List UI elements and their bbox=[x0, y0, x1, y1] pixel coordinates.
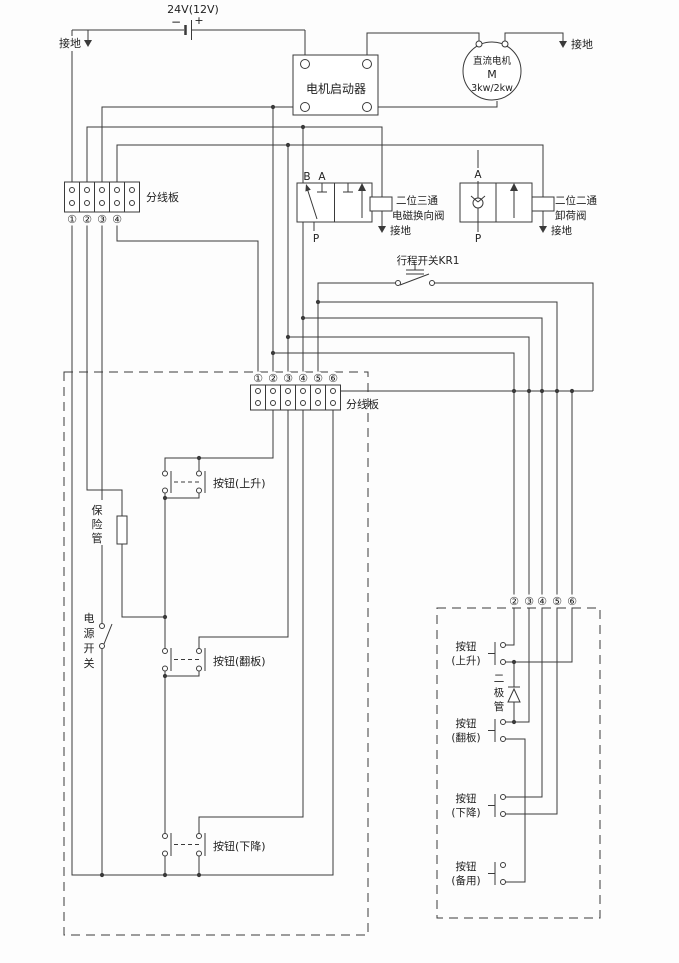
power-switch-symbol bbox=[100, 624, 105, 649]
button-down-label: 按钮(下降) bbox=[213, 839, 266, 853]
pendant-button-spare-label1: 按钮 bbox=[456, 860, 477, 873]
valve3way-name-line1: 二位三通 bbox=[396, 194, 438, 207]
wiring-diagram: 24V(12V) − + 接地 电机启动器 直流电机 M 3kw/2kw 接地 … bbox=[0, 0, 679, 963]
terminal-number: ⑤ bbox=[313, 372, 323, 385]
valve-port-p: P bbox=[313, 233, 319, 245]
valve3way-name-line2: 电磁换向阀 bbox=[392, 209, 445, 222]
pendant-button-up-symbol bbox=[488, 642, 506, 665]
terminal-number: ② bbox=[268, 372, 278, 385]
terminal-number: ⑥ bbox=[328, 372, 338, 385]
terminal-number: ③ bbox=[283, 372, 293, 385]
unload-valve-2way bbox=[460, 150, 554, 232]
terminal-board-left bbox=[65, 182, 140, 212]
power-switch-label-char: 电 bbox=[84, 612, 95, 625]
limit-switch-label: 行程开关KR1 bbox=[397, 254, 460, 267]
valve-port-b: B bbox=[303, 171, 310, 183]
pendant-button-flip-label2: (翻板) bbox=[451, 731, 480, 744]
fuse-label-char: 险 bbox=[92, 517, 103, 531]
button-down-symbol bbox=[163, 833, 206, 856]
terminal-number: ① bbox=[67, 213, 77, 226]
terminal-number: ③ bbox=[524, 595, 534, 608]
terminal-number: ② bbox=[509, 595, 519, 608]
battery-plus-label: + bbox=[194, 14, 203, 27]
left-board-label: 分线板 bbox=[146, 190, 179, 204]
power-switch-label-char: 源 bbox=[84, 626, 95, 640]
ground-arrow-icon bbox=[378, 226, 386, 233]
diode-label-char: 极 bbox=[494, 686, 505, 699]
terminal-number: ④ bbox=[298, 372, 308, 385]
motor-symbol-label: M bbox=[487, 68, 497, 81]
schematic-page: 24V(12V) − + 接地 电机启动器 直流电机 M 3kw/2kw 接地 … bbox=[0, 0, 679, 963]
pendant-button-spare-label2: (备用) bbox=[451, 874, 480, 887]
battery-minus-label: − bbox=[171, 15, 181, 29]
solenoid-valve-3way bbox=[297, 183, 392, 231]
terminal-number: ④ bbox=[112, 213, 122, 226]
button-flip-symbol bbox=[163, 648, 206, 671]
terminal-number: ⑤ bbox=[552, 595, 562, 608]
pendant-button-flip-symbol bbox=[488, 719, 506, 742]
valve2way-name-line1: 二位二通 bbox=[555, 194, 597, 207]
fuse-label-char: 管 bbox=[92, 531, 103, 545]
solenoid-coil bbox=[370, 197, 392, 211]
power-switch-label-char: 开 bbox=[84, 642, 95, 655]
solenoid-coil bbox=[532, 197, 554, 211]
valve-port-p: P bbox=[475, 233, 481, 245]
motor-rating-label: 3kw/2kw bbox=[471, 83, 513, 94]
ground-label: 接地 bbox=[59, 37, 81, 50]
diode-symbol bbox=[508, 689, 520, 702]
diode-label-char: 二 bbox=[494, 673, 505, 685]
terminal-board-center bbox=[251, 385, 341, 410]
battery-symbol bbox=[186, 20, 192, 40]
motor-starter-label: 电机启动器 bbox=[306, 82, 366, 96]
valve2way-name-line2: 卸荷阀 bbox=[555, 209, 587, 222]
valve-port-a: A bbox=[474, 169, 482, 181]
pendant-button-spare-symbol bbox=[488, 862, 506, 885]
pendant-button-flip-label1: 按钮 bbox=[456, 717, 477, 730]
wires bbox=[72, 30, 593, 882]
button-up-label: 按钮(上升) bbox=[213, 476, 266, 490]
ground-arrow-icon bbox=[559, 41, 567, 48]
motor-name-label: 直流电机 bbox=[473, 55, 512, 67]
button-flip-label: 按钮(翻板) bbox=[213, 654, 266, 668]
terminal-number: ④ bbox=[537, 595, 547, 608]
pendant-button-down-label1: 按钮 bbox=[456, 792, 477, 805]
valve-port-a: A bbox=[318, 171, 326, 183]
terminal-number: ③ bbox=[97, 213, 107, 226]
pendant-button-up-label1: 按钮 bbox=[456, 640, 477, 653]
power-switch-label-char: 关 bbox=[84, 656, 95, 670]
button-up-symbol bbox=[163, 471, 206, 493]
fuse-label-char: 保 bbox=[92, 503, 103, 517]
fuse-symbol bbox=[117, 516, 127, 544]
ground-arrow-icon bbox=[84, 40, 92, 47]
center-board-label: 分线板 bbox=[346, 397, 379, 411]
terminal-number: ⑥ bbox=[567, 595, 577, 608]
pendant-button-down-symbol bbox=[488, 794, 506, 817]
diode-label-char: 管 bbox=[494, 700, 505, 713]
pendant-button-up-label2: (上升) bbox=[451, 655, 480, 667]
terminal-number: ② bbox=[82, 213, 92, 226]
terminal-number: ① bbox=[253, 372, 263, 385]
ground-arrow-icon bbox=[539, 226, 547, 233]
limit-switch-symbol bbox=[396, 264, 435, 286]
ground-label: 接地 bbox=[551, 224, 572, 237]
pendant-button-down-label2: (下降) bbox=[451, 806, 480, 819]
ground-label: 接地 bbox=[390, 224, 411, 237]
ground-label: 接地 bbox=[571, 38, 593, 51]
